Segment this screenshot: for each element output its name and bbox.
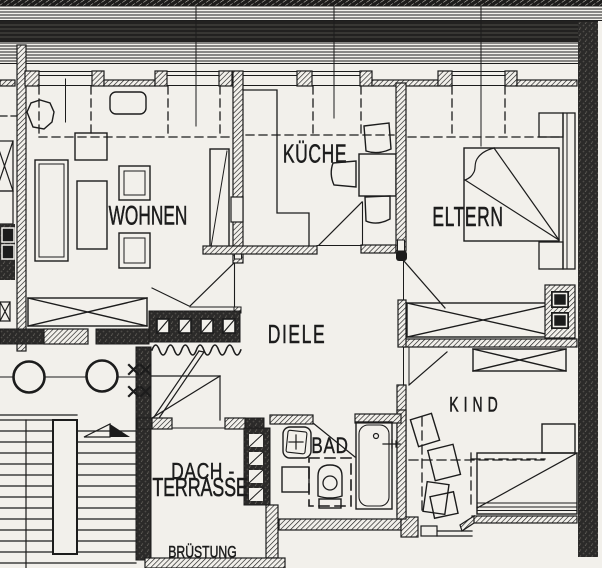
- svg-text:DIELE: DIELE: [268, 320, 327, 349]
- svg-text:KÜCHE: KÜCHE: [283, 139, 347, 168]
- svg-text:BAD: BAD: [311, 434, 348, 459]
- svg-text:KIND: KIND: [449, 393, 502, 417]
- svg-text:ELTERN: ELTERN: [432, 201, 503, 232]
- svg-text:WOHNEN: WOHNEN: [109, 199, 188, 230]
- svg-text:BRÜSTUNG: BRÜSTUNG: [168, 542, 236, 562]
- svg-text:TERRASSE: TERRASSE: [152, 473, 247, 502]
